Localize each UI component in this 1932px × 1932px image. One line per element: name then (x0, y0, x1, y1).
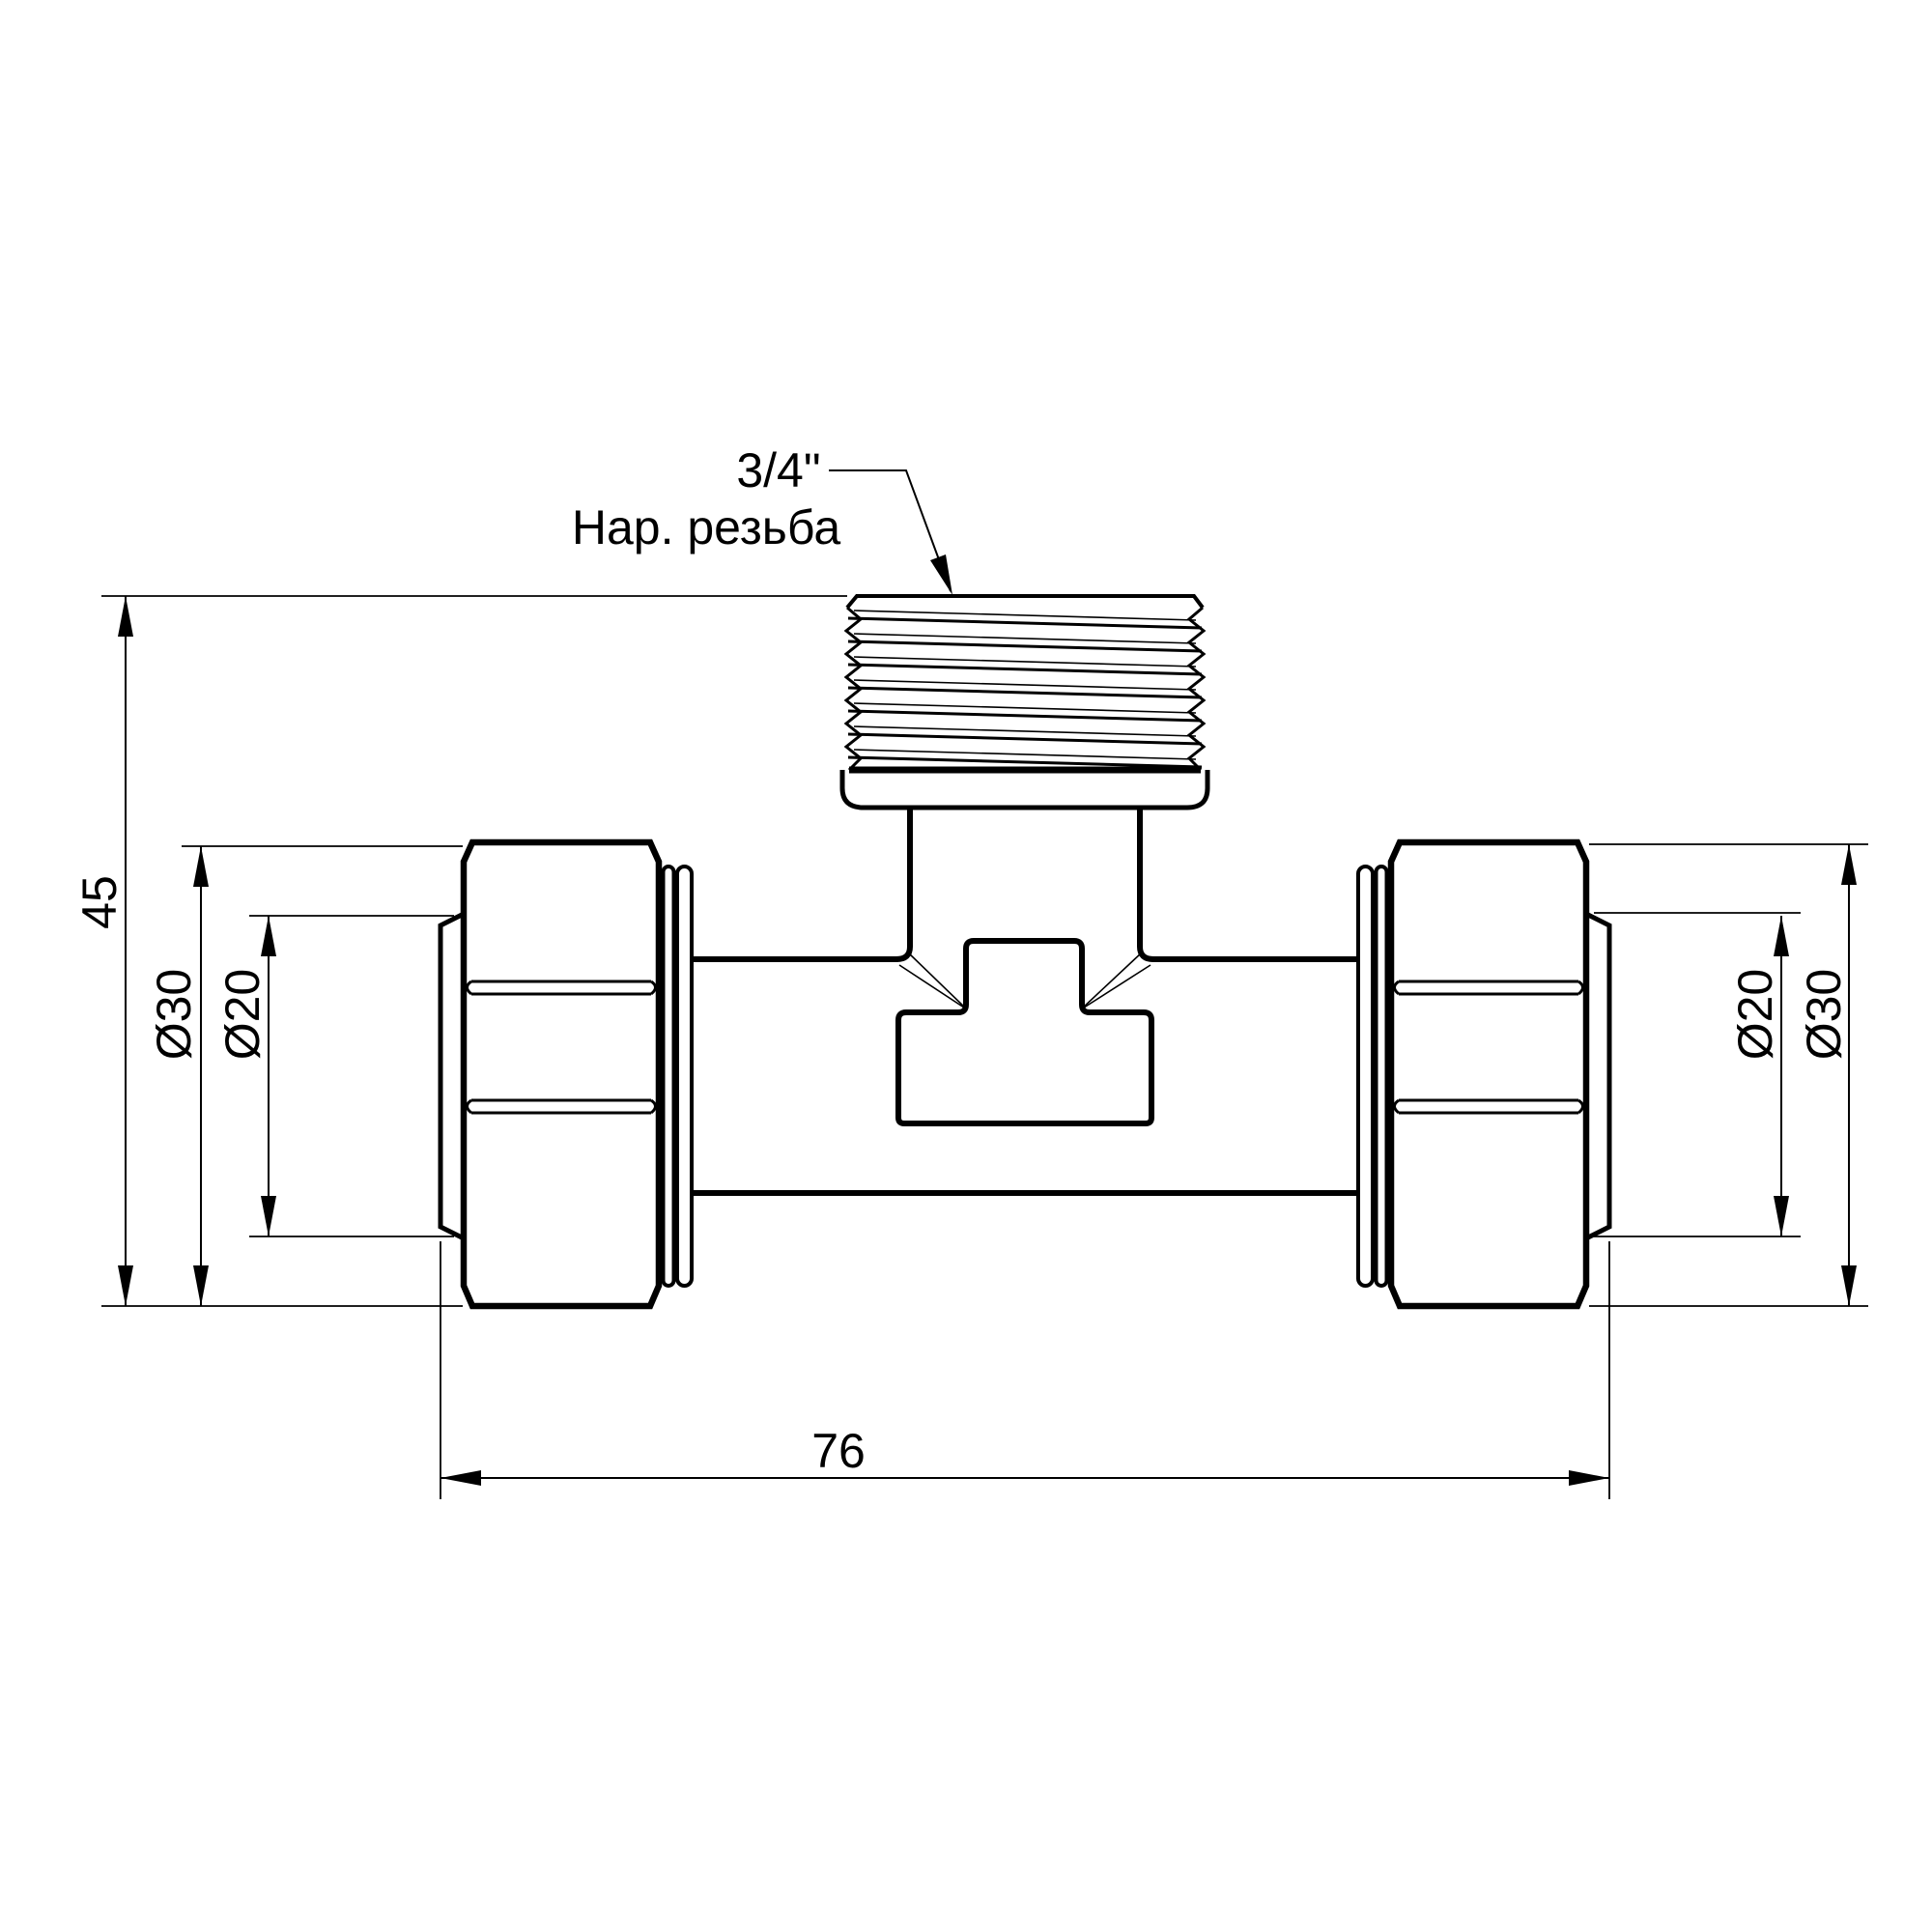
left-end-cap (440, 914, 464, 1238)
dimension-arrows (118, 554, 1857, 1486)
thread-callout-text: Нар. резьба (561, 502, 851, 553)
pipe-body (692, 959, 1358, 1193)
right-nut (1391, 842, 1586, 1306)
dim-right-pipe-diameter: Ø20 (1730, 947, 1780, 1082)
dim-right-nut-diameter: Ø30 (1799, 947, 1849, 1082)
dim-overall-length: 76 (771, 1426, 906, 1476)
right-end-cap (1586, 914, 1609, 1238)
extension-lines (101, 596, 1868, 1499)
dim-left-pipe-diameter: Ø20 (217, 947, 268, 1082)
leader-arrow (930, 554, 952, 595)
male-thread (846, 596, 1204, 770)
fillet-runout-lines (899, 952, 1151, 1009)
tee-boss (898, 941, 1151, 1123)
fitting-line-art (0, 0, 1932, 1932)
thread-collar (842, 770, 1207, 808)
left-washers (664, 867, 693, 1286)
drawing-canvas: 3/4" Нар. резьба 45 Ø30 Ø20 Ø20 Ø30 76 (0, 0, 1932, 1932)
left-nut (464, 842, 659, 1306)
neck (896, 810, 1153, 959)
dim-left-nut-diameter: Ø30 (149, 947, 199, 1082)
dim-overall-height: 45 (74, 835, 125, 970)
right-washers (1358, 867, 1387, 1286)
thread-callout-size: 3/4" (634, 445, 923, 496)
